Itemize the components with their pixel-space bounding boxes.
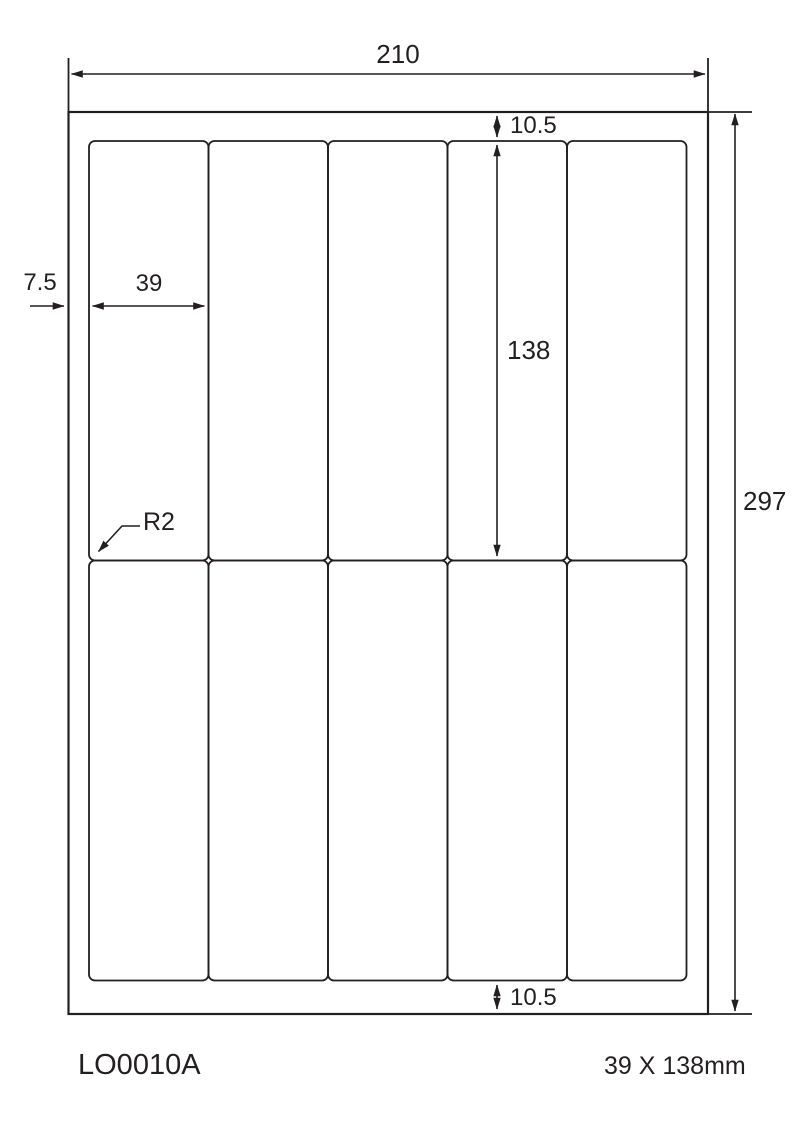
label-cell [448, 561, 568, 981]
label-size-text: 39 X 138mm [604, 1052, 746, 1080]
label-grid [89, 141, 687, 981]
sheet-outline [69, 112, 709, 1014]
diagram-canvas: 210 297 10.5 138 10.5 7.5 [0, 0, 796, 1124]
dim-bottom-margin: 10.5 [497, 984, 557, 1011]
dim-sheet-height: 297 [735, 114, 786, 1011]
label-cell [209, 561, 329, 981]
product-code: LO0010A [78, 1049, 201, 1081]
label-cell [89, 141, 209, 561]
dim-label-height: 138 [497, 145, 550, 556]
label-cell [209, 141, 329, 561]
corner-radius-callout: R2 [99, 508, 175, 552]
dim-label-width: 39 [93, 270, 205, 306]
dim-left-margin: 7.5 [23, 269, 64, 306]
label-cell [89, 561, 209, 981]
dim-bottom-margin-value: 10.5 [510, 984, 557, 1011]
extension-lines [69, 58, 753, 1014]
label-cell [567, 561, 687, 981]
dim-sheet-width: 210 [72, 39, 706, 74]
dim-top-margin-value: 10.5 [510, 112, 557, 139]
dim-label-height-value: 138 [507, 335, 550, 365]
dim-top-margin: 10.5 [497, 112, 557, 139]
label-sheet-diagram: 210 297 10.5 138 10.5 7.5 [0, 0, 796, 1124]
label-cell [328, 561, 448, 981]
dim-sheet-width-value: 210 [376, 39, 419, 69]
label-cell [328, 141, 448, 561]
label-cell [567, 141, 687, 561]
dim-label-width-value: 39 [136, 270, 163, 297]
corner-radius-leader-line [99, 526, 141, 552]
dim-sheet-height-value: 297 [743, 486, 786, 516]
dim-left-margin-value: 7.5 [23, 269, 56, 296]
corner-radius-value: R2 [143, 508, 175, 536]
